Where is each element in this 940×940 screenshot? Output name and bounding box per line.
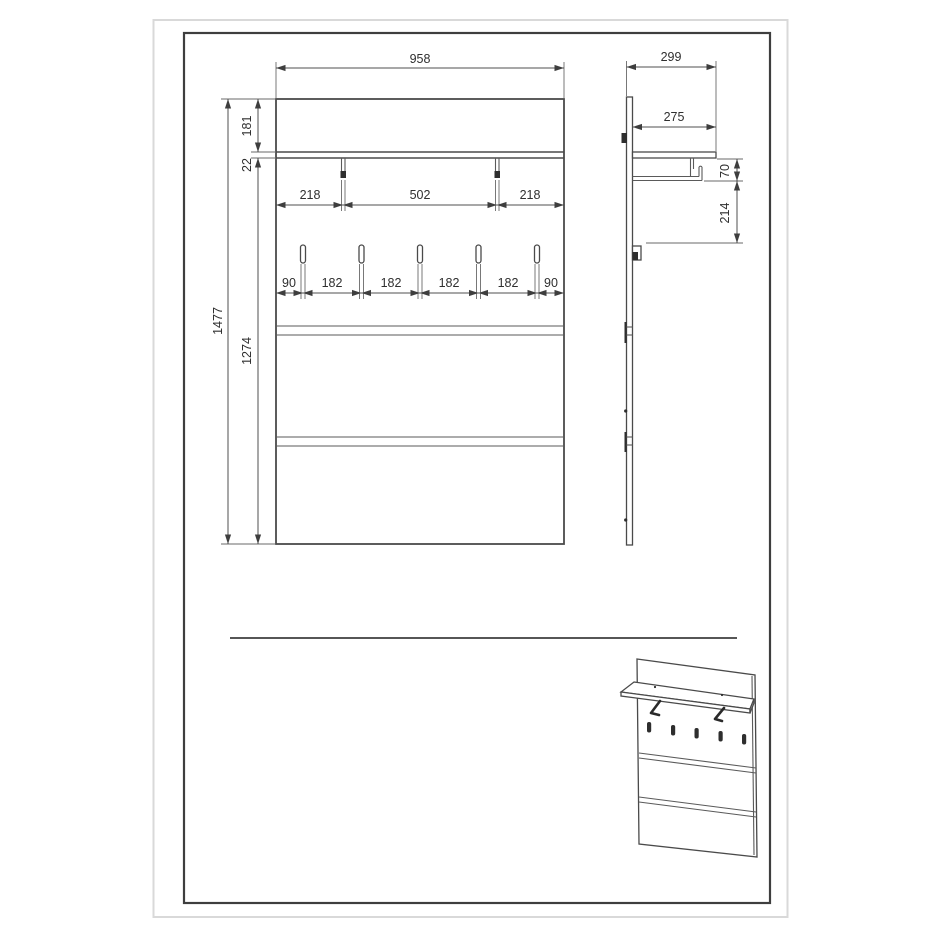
dim-bracket-left-label: 218 bbox=[300, 188, 321, 202]
side-wall-bracket bbox=[622, 133, 628, 143]
dim-front-lower-label: 1274 bbox=[240, 337, 254, 365]
dim-side-rail-offset: 70 bbox=[704, 159, 743, 181]
coat-hook bbox=[671, 725, 675, 736]
dim-bracket-span-label: 502 bbox=[410, 188, 431, 202]
dim-hook-gap-label: 182 bbox=[381, 276, 402, 290]
coat-hook bbox=[476, 245, 481, 263]
dim-side-depth: 299 bbox=[627, 50, 717, 151]
coat-hook bbox=[695, 728, 699, 739]
side-view: 299 275 70 214 bbox=[622, 50, 744, 545]
dim-front-upper-label: 181 bbox=[240, 116, 254, 137]
drawing-page: 958 1477 181 22 1274 218 bbox=[0, 0, 940, 940]
side-fixing-dot bbox=[624, 409, 627, 412]
dim-side-hook-offset-label: 214 bbox=[718, 203, 732, 224]
technical-drawing-canvas: 958 1477 181 22 1274 218 bbox=[0, 0, 940, 940]
side-hook bbox=[633, 246, 642, 260]
coat-hook bbox=[719, 731, 723, 742]
dim-front-width-label: 958 bbox=[410, 52, 431, 66]
dim-side-depth-label: 299 bbox=[661, 50, 682, 64]
coat-hook bbox=[301, 245, 306, 263]
dim-front-shelf-thickness-label: 22 bbox=[240, 158, 254, 172]
front-panel bbox=[276, 99, 564, 544]
front-view: 958 1477 181 22 1274 218 bbox=[211, 52, 564, 544]
dim-hook-gap-label: 182 bbox=[439, 276, 460, 290]
dim-side-shelf-depth-label: 275 bbox=[664, 110, 685, 124]
coat-hook bbox=[418, 245, 423, 263]
dim-front-width: 958 bbox=[276, 52, 564, 98]
dim-side-hook-offset: 214 bbox=[646, 181, 743, 243]
dim-hook-edge-left-label: 90 bbox=[282, 276, 296, 290]
side-panel bbox=[627, 97, 633, 545]
side-fixing-dot bbox=[624, 518, 627, 521]
coat-hook bbox=[647, 722, 651, 733]
coat-hook bbox=[742, 734, 746, 745]
dim-side-shelf-depth: 275 bbox=[633, 110, 717, 127]
dim-side-rail-offset-label: 70 bbox=[718, 164, 732, 178]
dim-hook-edge-right-label: 90 bbox=[544, 276, 558, 290]
side-shelf bbox=[633, 152, 717, 158]
side-rail-profile bbox=[633, 158, 703, 181]
isometric-view bbox=[621, 659, 757, 857]
dim-front-height-label: 1477 bbox=[211, 307, 225, 335]
dim-bracket-right-label: 218 bbox=[520, 188, 541, 202]
dim-hook-gap-label: 182 bbox=[322, 276, 343, 290]
coat-hook bbox=[359, 245, 364, 263]
coat-hook bbox=[535, 245, 540, 263]
dim-front-left-segments: 181 22 1274 bbox=[240, 99, 276, 544]
dim-hook-gap-label: 182 bbox=[498, 276, 519, 290]
